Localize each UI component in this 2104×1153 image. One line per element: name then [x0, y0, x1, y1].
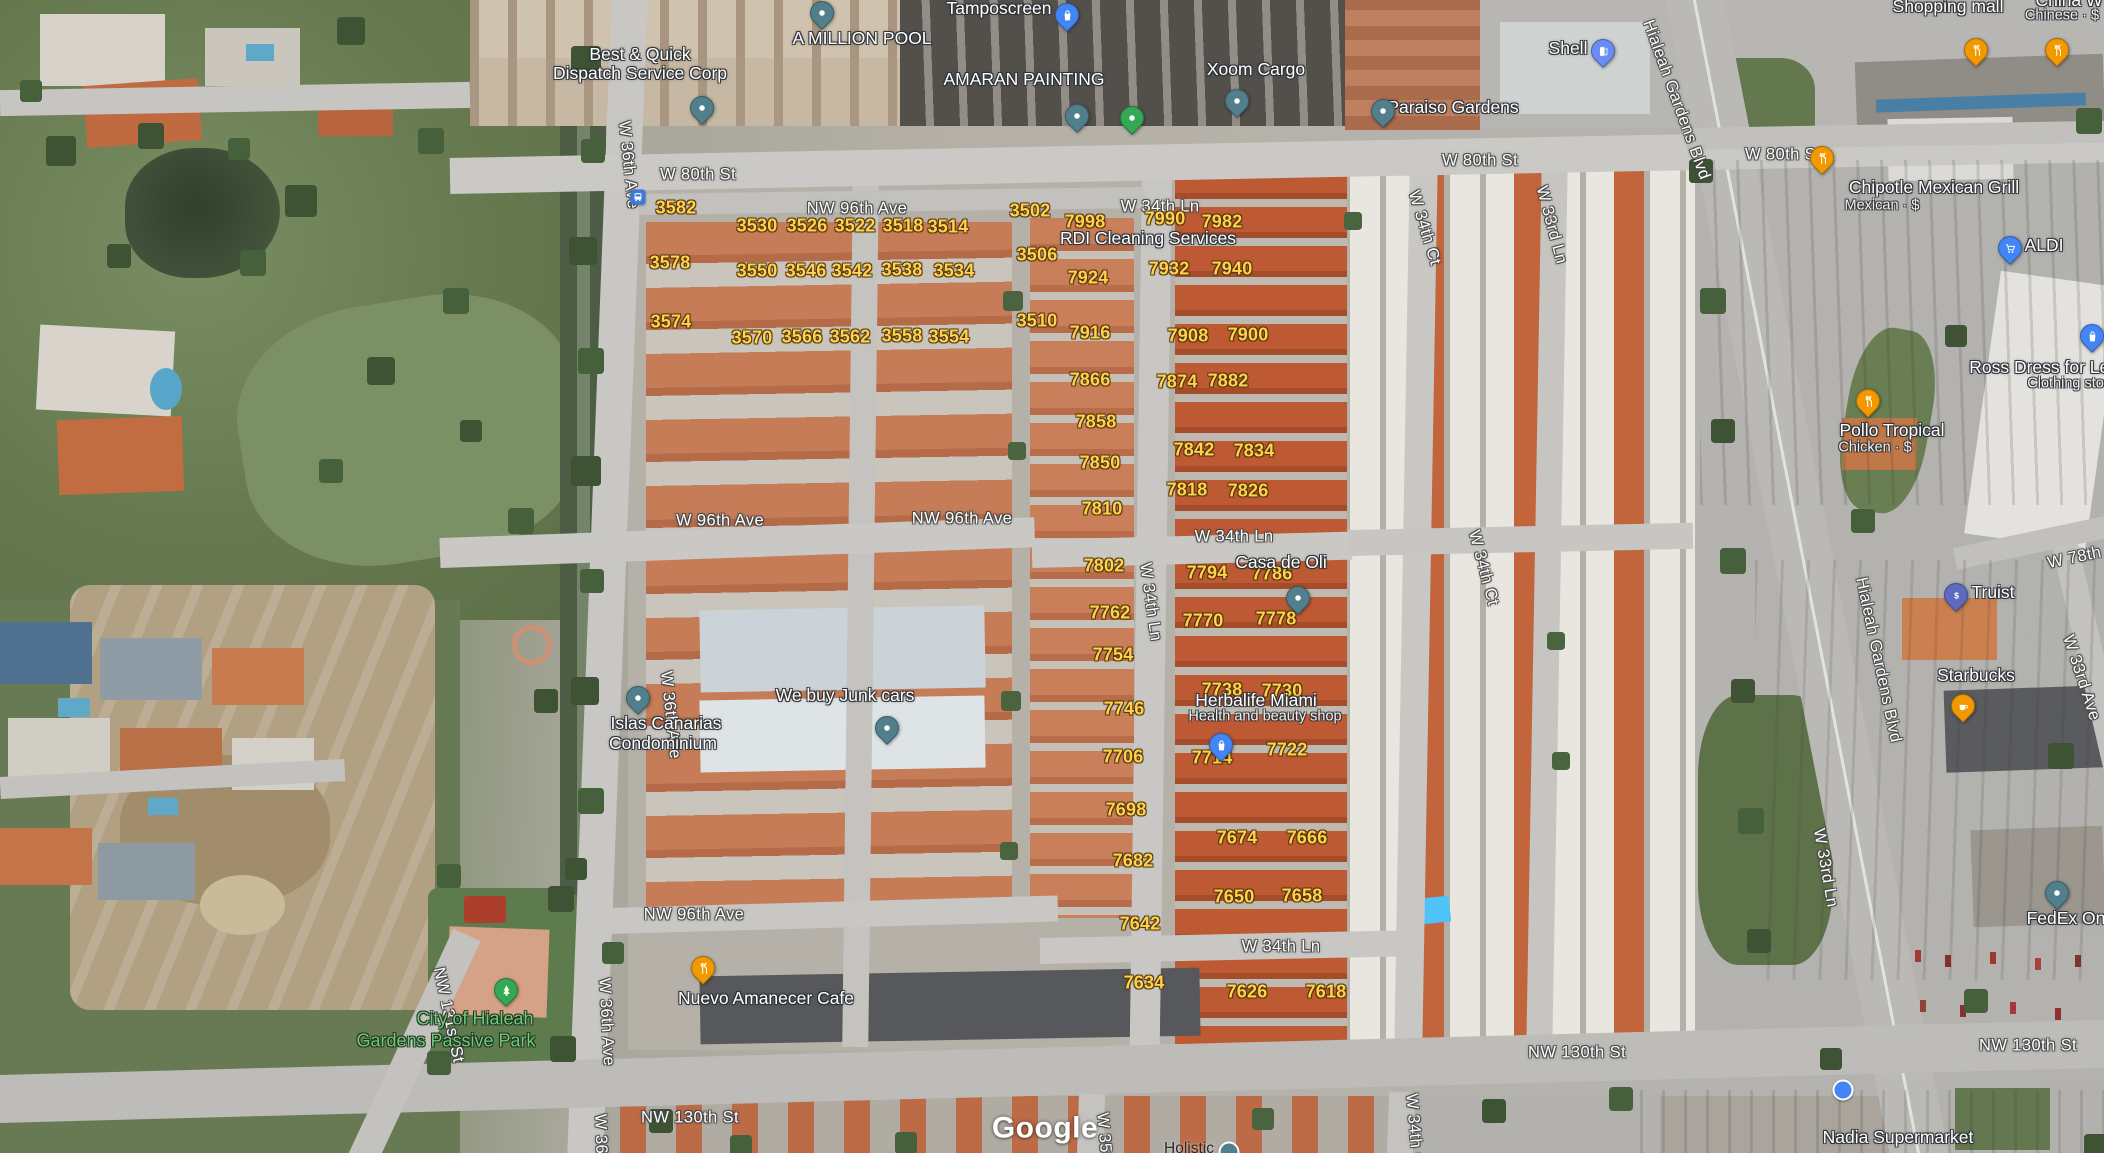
house-number: 7770	[1183, 612, 1224, 631]
house-number: 7818	[1167, 481, 1208, 500]
street-label: NW 130th St	[1528, 1044, 1626, 1061]
poi-label[interactable]: A MILLION POOL	[792, 29, 931, 47]
house-number: 3530	[737, 217, 778, 236]
house-number: 7722	[1267, 741, 1308, 760]
poi-label[interactable]: FedEx On	[2027, 909, 2104, 927]
cart-pin[interactable]	[1993, 231, 2027, 265]
poi-subtext[interactable]: Chinese · $	[2025, 8, 2099, 23]
restaurant-pin[interactable]	[1851, 384, 1885, 418]
dot-pin[interactable]	[1220, 84, 1254, 118]
house-number: 7666	[1287, 829, 1328, 848]
poi-label[interactable]: ALDI	[2025, 236, 2064, 254]
poi-label[interactable]: Xoom Cargo	[1207, 60, 1305, 78]
google-watermark: Google	[992, 1112, 1098, 1144]
poi-label[interactable]: Herbalife Miami	[1195, 691, 1317, 709]
house-number: 7682	[1113, 852, 1154, 871]
house-number: 7990	[1145, 210, 1186, 229]
circle-pin[interactable]	[1219, 1142, 1240, 1153]
house-number: 3542	[832, 262, 873, 281]
tree-pin[interactable]	[489, 973, 523, 1007]
house-number: 3578	[650, 254, 691, 273]
street-label: NW 130th St	[1979, 1037, 2077, 1054]
house-number: 3558	[882, 327, 923, 346]
street-label: W 33rd Ave	[2059, 633, 2103, 723]
bus-pin[interactable]	[631, 190, 646, 205]
poi-label[interactable]: AMARAN PAINTING	[943, 70, 1104, 88]
house-number: 7698	[1106, 801, 1147, 820]
house-number: 7908	[1168, 327, 1209, 346]
bag-pin[interactable]	[1050, 0, 1084, 32]
house-number: 7866	[1070, 371, 1111, 390]
street-label: W 33rd Ln	[1810, 827, 1841, 909]
restaurant-pin[interactable]	[1959, 33, 1993, 67]
house-number: 3546	[786, 262, 827, 281]
restaurant-pin[interactable]	[2040, 33, 2074, 67]
house-number: 7802	[1084, 557, 1125, 576]
dot-pin[interactable]	[685, 91, 719, 125]
house-number: 3514	[928, 218, 969, 237]
street-label: W 36th Ave	[595, 978, 617, 1067]
poi-subtext[interactable]: Health and beauty shop	[1188, 709, 1341, 724]
poi-label[interactable]: We buy Junk cars	[776, 686, 915, 704]
house-number: 7650	[1214, 888, 1255, 907]
poi-label[interactable]: Tamposcreen	[946, 0, 1051, 17]
coffee-pin[interactable]	[1946, 689, 1980, 723]
house-number: 7940	[1212, 260, 1253, 279]
house-number: 7794	[1187, 564, 1228, 583]
dot-pin[interactable]	[1115, 101, 1149, 135]
svg-text:$: $	[1954, 590, 1959, 600]
street-label: W 80th St	[660, 166, 736, 183]
house-number: 3502	[1010, 202, 1051, 221]
street-label: W 36th Ave	[591, 1114, 611, 1153]
house-number: 7706	[1103, 748, 1144, 767]
house-number: 3538	[882, 261, 923, 280]
house-number: 7634	[1124, 974, 1165, 993]
circle-pin[interactable]	[1833, 1080, 1854, 1101]
house-number: 3562	[830, 328, 871, 347]
restaurant-pin[interactable]	[1805, 141, 1839, 175]
street-label: W 34th Ct	[1404, 189, 1443, 268]
house-number: 7762	[1090, 604, 1131, 623]
house-number: 7626	[1227, 983, 1268, 1002]
street-label: Hialeah Gardens Blvd	[1852, 576, 1904, 744]
poi-label[interactable]: RDI Cleaning Services	[1060, 229, 1236, 247]
house-number: 7842	[1174, 441, 1215, 460]
park-label[interactable]: Gardens Passive Park	[356, 1032, 535, 1051]
dot-pin[interactable]	[1060, 99, 1094, 133]
poi-label[interactable]: Nuevo Amanecer Cafe	[678, 989, 854, 1007]
poi-label[interactable]: Islas Canarias	[611, 714, 722, 732]
street-label: NW 130th St	[641, 1109, 739, 1126]
street-label: W 34th Ln	[1195, 528, 1274, 545]
street-label: W 96th Ave	[676, 512, 764, 529]
house-number: 7754	[1093, 646, 1134, 665]
house-number: 7778	[1256, 610, 1297, 629]
house-number: 7874	[1157, 373, 1198, 392]
house-number: 7924	[1068, 269, 1109, 288]
house-number: 3566	[782, 328, 823, 347]
house-number: 3510	[1017, 312, 1058, 331]
poi-subtext[interactable]: Chicken · $	[1838, 440, 1911, 455]
street-label: Hialeah Gardens Blvd	[1639, 18, 1713, 182]
house-number: 7834	[1234, 442, 1275, 461]
house-number: 3506	[1017, 246, 1058, 265]
street-label: W 80th St	[1442, 152, 1518, 169]
poi-label[interactable]: Best & Quick	[589, 45, 690, 63]
poi-label[interactable]: Truist	[1971, 583, 2014, 601]
house-number: 3534	[934, 262, 975, 281]
house-number: 7932	[1149, 260, 1190, 279]
house-number: 7826	[1228, 482, 1269, 501]
poi-label[interactable]: Chipotle Mexican Grill	[1849, 178, 2019, 196]
poi-subtext[interactable]: Mexican · $	[1845, 198, 1920, 213]
house-number: 7916	[1070, 324, 1111, 343]
street-label: W 33rd Ln	[1532, 184, 1569, 265]
street-label: NW 96th Ave	[912, 510, 1012, 527]
house-number: 3554	[929, 328, 970, 347]
dot-pin[interactable]	[621, 681, 655, 715]
park-label[interactable]: City of Hialeah	[416, 1010, 533, 1029]
house-number: 7882	[1208, 372, 1249, 391]
street-label: W 34th Ct	[1465, 529, 1502, 608]
house-number: 7746	[1104, 700, 1145, 719]
street-label: W 34th Ln	[1136, 562, 1164, 642]
house-number: 7658	[1282, 887, 1323, 906]
house-number: 3518	[883, 217, 924, 236]
street-label: W 34th Ln	[1242, 938, 1321, 955]
house-number: 7642	[1120, 915, 1161, 934]
poi-label[interactable]: Shell	[1549, 39, 1588, 57]
house-number: 7618	[1306, 983, 1347, 1002]
house-number: 7850	[1080, 454, 1121, 473]
house-number: 3574	[651, 313, 692, 332]
dot-pin[interactable]	[870, 711, 904, 745]
restaurant-pin[interactable]	[686, 951, 720, 985]
house-number: 3522	[835, 217, 876, 236]
dot-pin[interactable]	[2040, 876, 2074, 910]
bag-pin[interactable]	[2075, 319, 2104, 353]
street-label: W 78th St	[2046, 540, 2104, 573]
poi-label[interactable]: Nadia Supermarket	[1823, 1128, 1974, 1146]
house-number: 7674	[1217, 829, 1258, 848]
poi-label[interactable]: Ross Dress for Less	[1969, 358, 2104, 376]
gas-pin[interactable]	[1586, 34, 1620, 68]
house-number: 3526	[787, 217, 828, 236]
house-number: 7858	[1076, 413, 1117, 432]
map-labels-layer: W 80th StW 80th StW 80th StNW 96th AveW …	[0, 0, 2104, 1153]
poi-subtext[interactable]: Clothing store	[2027, 376, 2104, 391]
dollar-pin[interactable]: $	[1939, 578, 1973, 612]
poi-label[interactable]: Starbucks	[1937, 666, 2015, 684]
house-number: 3570	[732, 329, 773, 348]
dot-pin[interactable]	[805, 0, 839, 30]
poi-label[interactable]: Condominium	[609, 734, 717, 752]
house-number: 7900	[1228, 326, 1269, 345]
house-number: 3582	[656, 199, 697, 218]
street-label: NW 96th Ave	[644, 906, 744, 923]
house-number: 3550	[737, 262, 778, 281]
street-label: W 34th Ct	[1402, 1093, 1426, 1153]
poi-label[interactable]: Dispatch Service Corp	[553, 64, 727, 82]
satellite-map[interactable]: W 80th StW 80th StW 80th StNW 96th AveW …	[0, 0, 2104, 1153]
poi-label[interactable]: Paraiso Gardens	[1387, 98, 1518, 116]
house-number: 7810	[1082, 500, 1123, 519]
poi-label[interactable]: Holistic	[1164, 1141, 1214, 1153]
poi-label[interactable]: Casa de Oli	[1235, 553, 1326, 571]
poi-label[interactable]: Pollo Tropical	[1839, 421, 1944, 439]
poi-label[interactable]: Shopping mall	[1893, 0, 2004, 15]
